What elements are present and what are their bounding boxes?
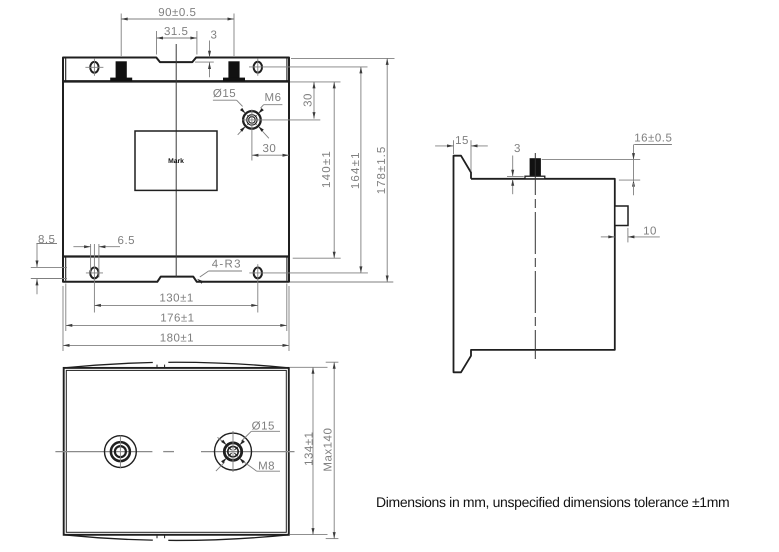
svg-text:30: 30: [263, 143, 277, 155]
svg-text:10: 10: [643, 225, 657, 237]
svg-text:8.5: 8.5: [38, 234, 56, 246]
svg-text:3: 3: [514, 143, 521, 155]
svg-text:134±1: 134±1: [303, 431, 315, 465]
svg-text:M6: M6: [265, 92, 282, 104]
svg-text:178±1.5: 178±1.5: [376, 146, 388, 195]
svg-text:M8: M8: [258, 461, 275, 473]
svg-text:Dimensions in mm, unspecified: Dimensions in mm, unspecified dimensions…: [376, 494, 729, 510]
svg-text:4-R3: 4-R3: [212, 259, 242, 271]
svg-text:176±1: 176±1: [160, 312, 194, 324]
svg-text:130±1: 130±1: [159, 292, 193, 304]
svg-text:Mark: Mark: [168, 158, 184, 165]
svg-text:140±1: 140±1: [321, 150, 333, 188]
svg-text:90±0.5: 90±0.5: [158, 7, 196, 19]
svg-text:164±1: 164±1: [350, 151, 362, 189]
svg-text:Ø15: Ø15: [213, 88, 236, 100]
svg-text:Ø15: Ø15: [252, 420, 275, 432]
svg-text:31.5: 31.5: [164, 26, 188, 38]
svg-text:Max140: Max140: [322, 428, 334, 472]
svg-text:15: 15: [455, 135, 469, 147]
svg-text:180±1: 180±1: [160, 332, 194, 344]
svg-text:3: 3: [210, 29, 217, 41]
svg-text:16±0.5: 16±0.5: [634, 132, 672, 144]
svg-text:6.5: 6.5: [118, 235, 136, 247]
svg-text:30: 30: [302, 93, 314, 107]
